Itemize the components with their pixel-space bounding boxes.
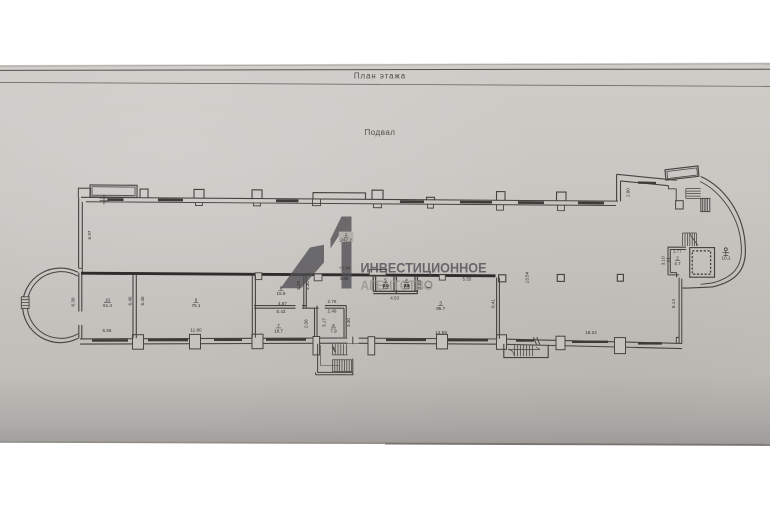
svg-text:6.40: 6.40 — [128, 296, 133, 305]
svg-text:11.80: 11.80 — [190, 328, 202, 333]
svg-text:95.7: 95.7 — [436, 306, 445, 311]
svg-text:3.29: 3.29 — [296, 281, 301, 290]
svg-text:2.06: 2.06 — [303, 319, 308, 328]
svg-text:7: 7 — [277, 323, 280, 328]
svg-text:3.6: 3.6 — [403, 283, 410, 288]
svg-text:61.4: 61.4 — [103, 303, 112, 308]
svg-text:242.2: 242.2 — [340, 238, 352, 243]
svg-text:6.97: 6.97 — [87, 230, 92, 239]
svg-text:3.17: 3.17 — [322, 318, 327, 327]
svg-text:14.59: 14.59 — [435, 330, 447, 335]
svg-text:3: 3 — [439, 301, 442, 306]
svg-text:2.49: 2.49 — [328, 308, 337, 313]
svg-text:18.24: 18.24 — [585, 330, 597, 335]
svg-text:10,1: 10,1 — [722, 256, 731, 261]
svg-text:+2.94: +2.94 — [339, 265, 351, 270]
svg-text:1.77: 1.77 — [673, 248, 682, 253]
svg-text:6.39: 6.39 — [71, 297, 76, 306]
svg-text:9: 9 — [195, 298, 198, 303]
svg-text:6.43: 6.43 — [277, 309, 286, 314]
svg-text:3.10: 3.10 — [661, 256, 666, 265]
svg-text:6.40: 6.40 — [140, 296, 145, 305]
svg-text:18.7: 18.7 — [274, 329, 283, 334]
svg-text:6.14: 6.14 — [671, 299, 676, 308]
svg-text:План этажа: План этажа — [354, 72, 406, 81]
svg-text:5: 5 — [384, 278, 387, 283]
svg-text:15.8: 15.8 — [277, 291, 286, 296]
svg-text:3.5: 3.5 — [382, 283, 389, 288]
svg-text:АГЕНТСТВО: АГЕНТСТВО — [361, 278, 434, 293]
svg-text:4.88: 4.88 — [340, 276, 349, 281]
svg-text:3.30: 3.30 — [346, 318, 351, 327]
svg-text:4.7: 4.7 — [674, 261, 681, 266]
svg-text:6.41: 6.41 — [491, 298, 496, 307]
svg-text:7.9: 7.9 — [330, 329, 337, 334]
svg-text:10: 10 — [105, 298, 111, 303]
svg-text:4.87: 4.87 — [278, 301, 287, 306]
svg-text:5.55: 5.55 — [463, 276, 472, 281]
svg-text:ИНВЕСТИЦИОННОЕ: ИНВЕСТИЦИОННОЕ — [361, 260, 487, 275]
svg-text:75.1: 75.1 — [192, 303, 201, 308]
svg-text:2: 2 — [676, 256, 679, 261]
svg-text:8: 8 — [280, 286, 283, 291]
svg-text:4: 4 — [405, 278, 408, 283]
svg-text:2.75: 2.75 — [328, 299, 337, 304]
svg-text:5.56: 5.56 — [103, 328, 112, 333]
svg-text:3.00: 3.00 — [417, 280, 422, 289]
svg-text:3.30: 3.30 — [305, 281, 310, 290]
svg-text:2.80: 2.80 — [626, 188, 631, 197]
svg-text:1: 1 — [345, 232, 348, 237]
svg-text:13.54: 13.54 — [525, 271, 530, 283]
svg-text:Подвал: Подвал — [365, 128, 396, 137]
svg-text:6: 6 — [332, 323, 335, 328]
svg-text:4.53: 4.53 — [390, 295, 399, 300]
